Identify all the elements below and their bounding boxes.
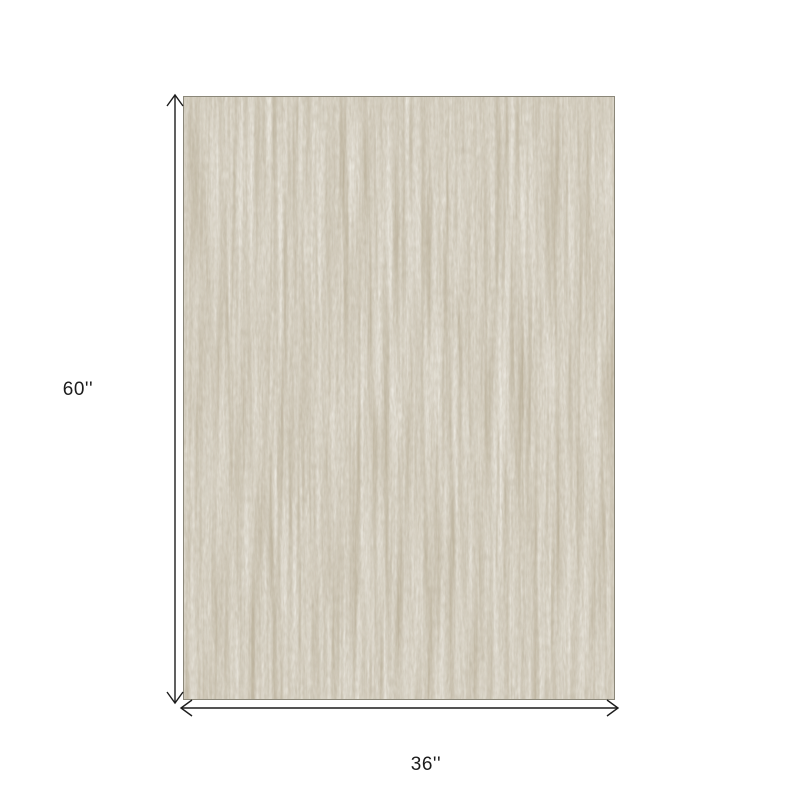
rug-texture bbox=[184, 97, 614, 699]
width-dimension-label: 36'' bbox=[396, 754, 456, 776]
arrow-up-icon bbox=[167, 95, 183, 106]
arrow-right-icon bbox=[607, 700, 618, 716]
arrow-down-icon bbox=[167, 692, 183, 703]
product-dimension-diagram: 60'' 36'' bbox=[0, 0, 800, 800]
height-dimension-label: 60'' bbox=[50, 379, 106, 401]
arrow-left-icon bbox=[181, 700, 192, 716]
rug-swatch bbox=[183, 96, 615, 700]
rug-weave-grain bbox=[184, 97, 614, 699]
